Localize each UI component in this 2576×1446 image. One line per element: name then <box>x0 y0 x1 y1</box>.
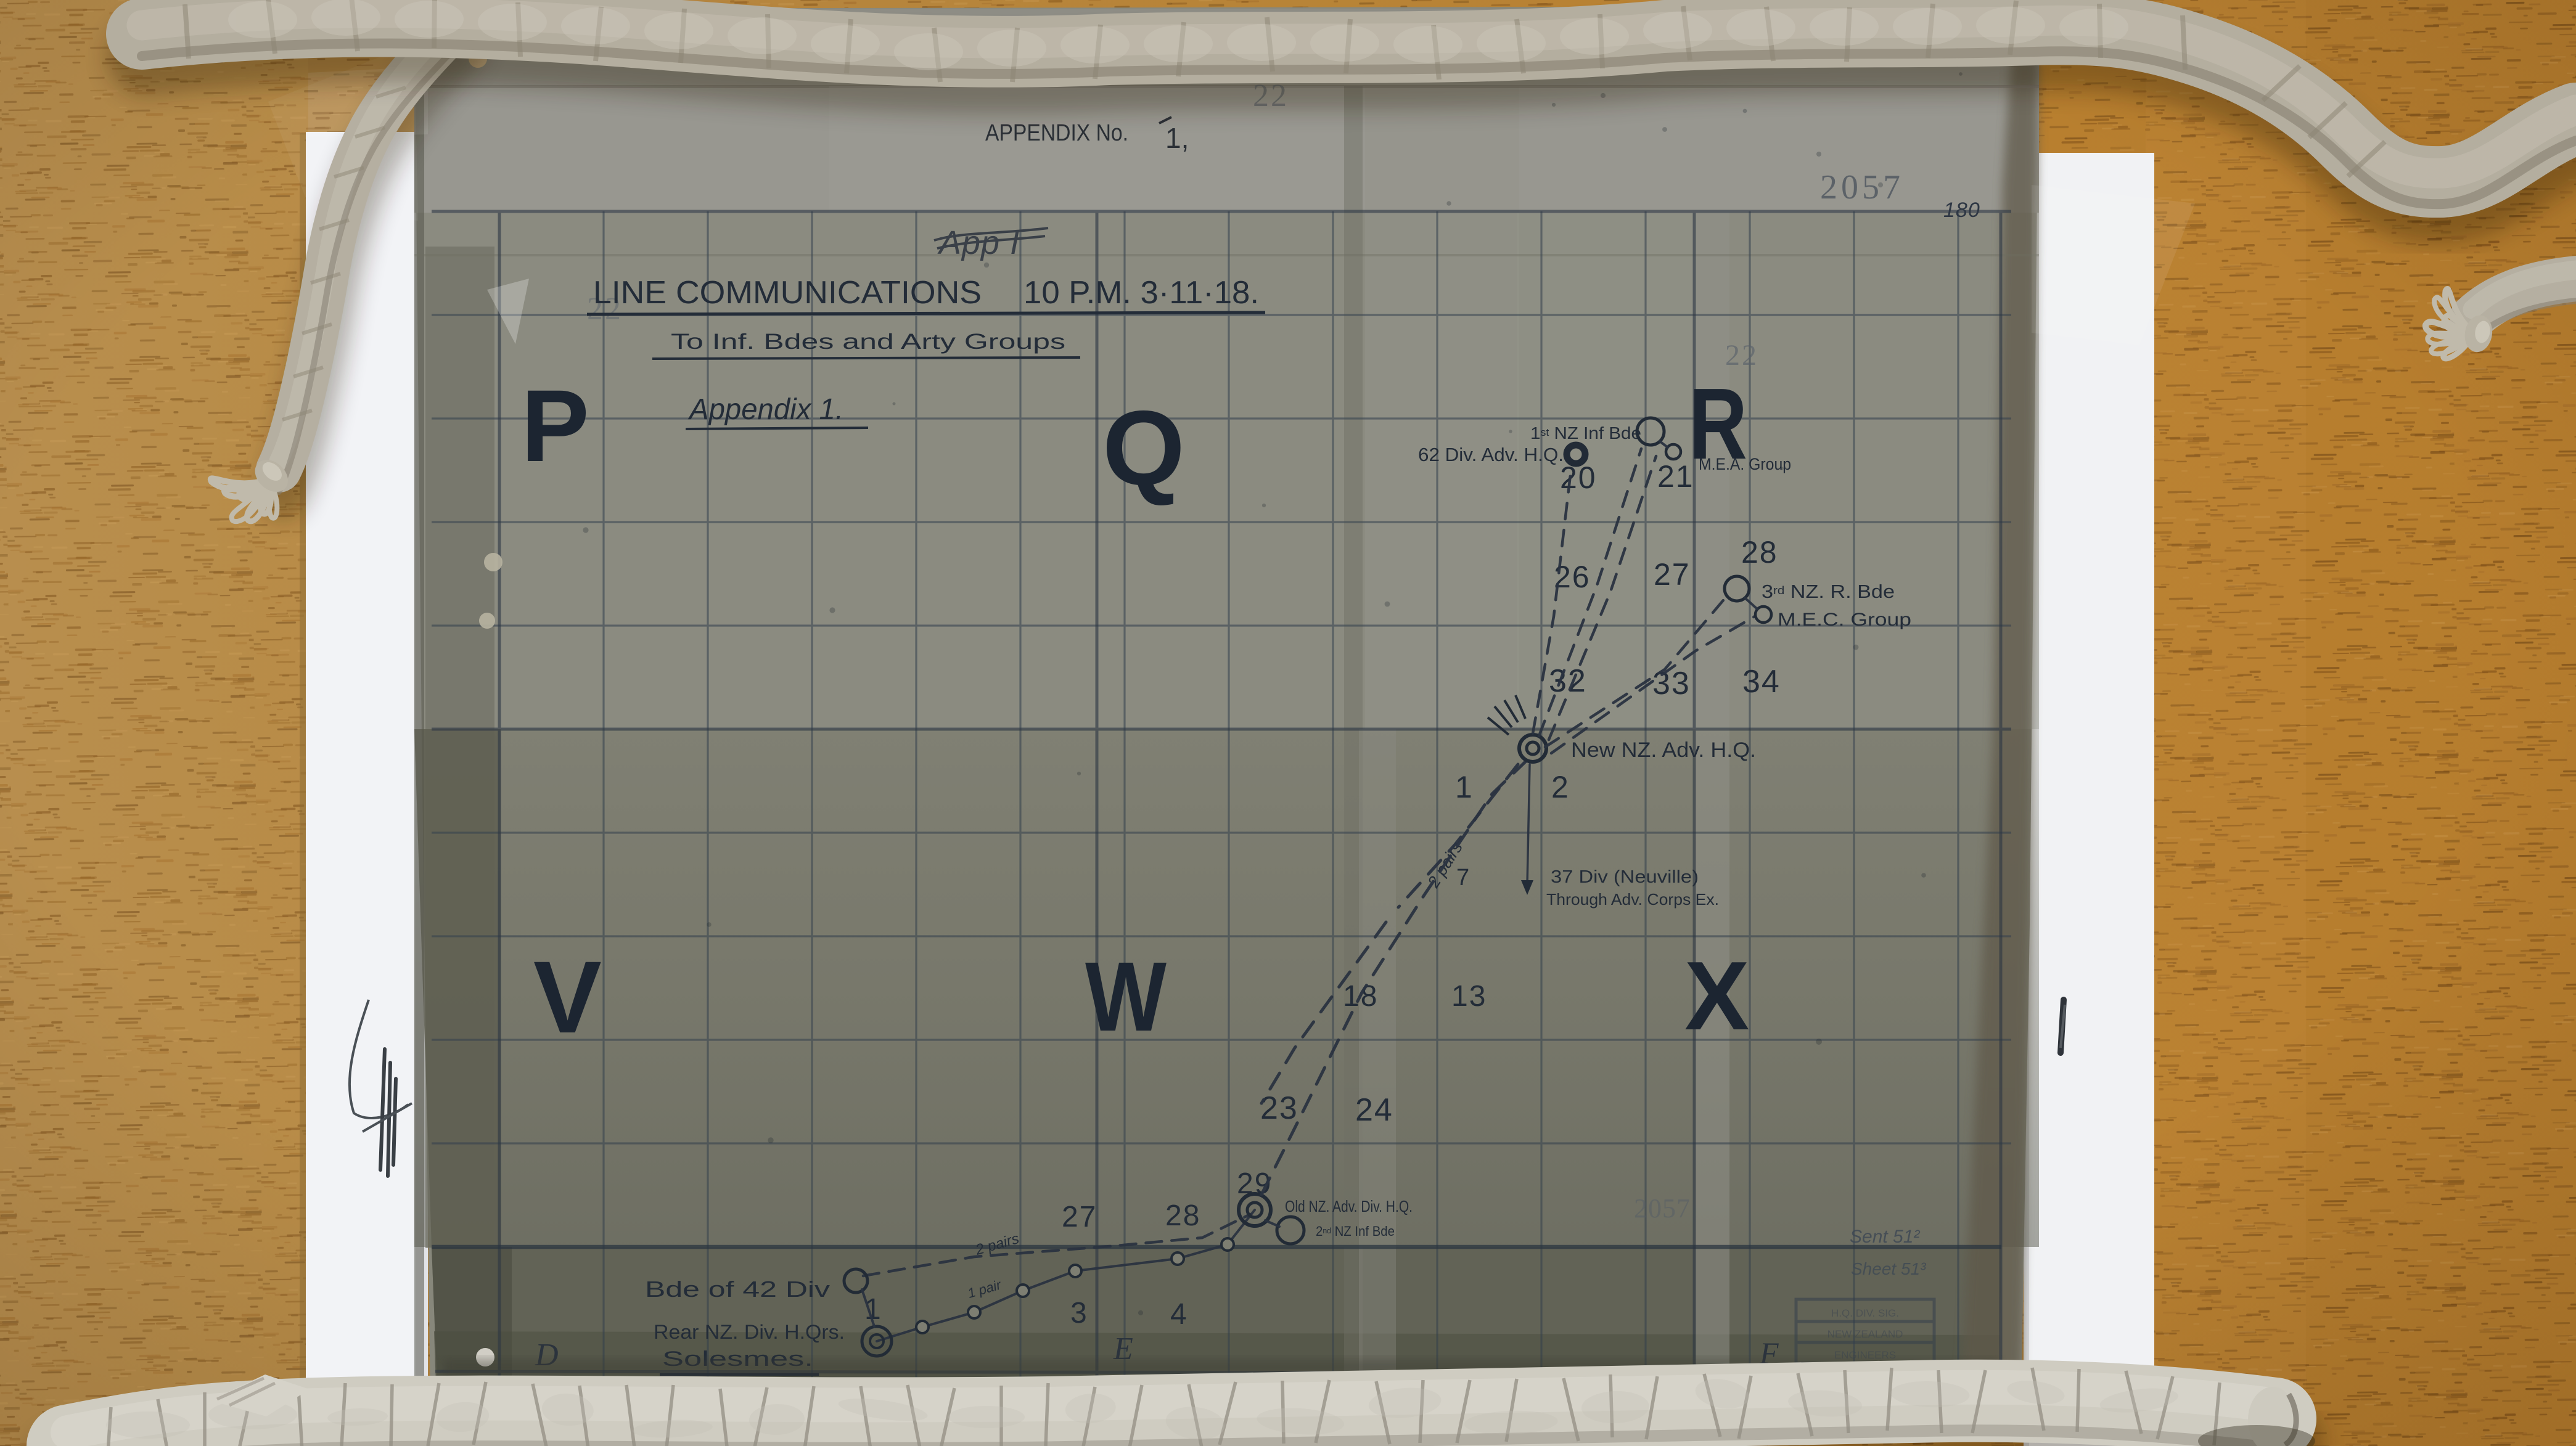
svg-text:7: 7 <box>1456 865 1471 891</box>
svg-text:M.E.A. Group: M.E.A. Group <box>1699 455 1791 473</box>
svg-text:H.Q. DIV. SIG.: H.Q. DIV. SIG. <box>1831 1307 1899 1319</box>
svg-text:37 Div (Neuville): 37 Div (Neuville) <box>1551 867 1699 887</box>
svg-text:Rear NZ. Div. H.Qrs.: Rear NZ. Div. H.Qrs. <box>654 1321 845 1343</box>
svg-text:2: 2 <box>1551 770 1570 804</box>
svg-text:To Inf. Bdes and Arty Groups: To Inf. Bdes and Arty Groups <box>671 330 1065 354</box>
svg-text:New NZ. Adv. H.Q.: New NZ. Adv. H.Q. <box>1571 738 1756 762</box>
svg-text:Through Adv. Corps Ex.: Through Adv. Corps Ex. <box>1546 890 1719 909</box>
svg-text:28: 28 <box>1165 1199 1200 1232</box>
svg-text:1,: 1, <box>1165 122 1189 154</box>
svg-text:X: X <box>1684 942 1749 1050</box>
svg-text:24: 24 <box>1355 1092 1393 1128</box>
svg-text:34: 34 <box>1742 664 1781 700</box>
svg-text:32: 32 <box>1549 663 1587 699</box>
svg-text:Sent 51²: Sent 51² <box>1850 1227 1920 1247</box>
svg-text:Bde of 42 Div: Bde of 42 Div <box>645 1276 830 1302</box>
svg-text:2057: 2057 <box>1634 1193 1691 1223</box>
svg-text:M.E.C. Group: M.E.C. Group <box>1778 610 1911 630</box>
svg-text:23: 23 <box>1260 1090 1298 1126</box>
svg-text:4: 4 <box>1170 1298 1188 1331</box>
svg-text:180: 180 <box>1943 198 1980 222</box>
svg-text:1: 1 <box>1455 770 1474 804</box>
svg-text:33: 33 <box>1652 666 1691 701</box>
svg-text:Appendix 1.: Appendix 1. <box>687 393 843 426</box>
svg-text:10 P.M. 3·11·18.: 10 P.M. 3·11·18. <box>1023 275 1259 311</box>
svg-text:NEW ZEALAND: NEW ZEALAND <box>1827 1328 1903 1340</box>
svg-text:3: 3 <box>1070 1297 1088 1330</box>
svg-text:13: 13 <box>1451 980 1487 1013</box>
svg-text:W: W <box>1085 941 1167 1052</box>
svg-text:62 Div. Adv. H.Q.: 62 Div. Adv. H.Q. <box>1418 444 1564 465</box>
svg-text:APPENDIX No.: APPENDIX No. <box>985 120 1128 146</box>
svg-text:Q: Q <box>1102 389 1185 507</box>
svg-text:ENGINEERS: ENGINEERS <box>1834 1349 1896 1361</box>
svg-text:27: 27 <box>1654 557 1691 592</box>
svg-text:28: 28 <box>1741 535 1778 570</box>
svg-text:27: 27 <box>1062 1201 1097 1233</box>
svg-text:P: P <box>521 369 589 483</box>
svg-text:LINE COMMUNICATIONS: LINE COMMUNICATIONS <box>593 275 982 311</box>
svg-text:V: V <box>533 941 602 1055</box>
svg-text:Sheet 51³: Sheet 51³ <box>1851 1259 1926 1278</box>
svg-text:Old NZ. Adv. Div. H.Q.: Old NZ. Adv. Div. H.Q. <box>1285 1197 1413 1215</box>
svg-text:21: 21 <box>1657 459 1694 494</box>
svg-text:2057: 2057 <box>1820 168 1904 206</box>
